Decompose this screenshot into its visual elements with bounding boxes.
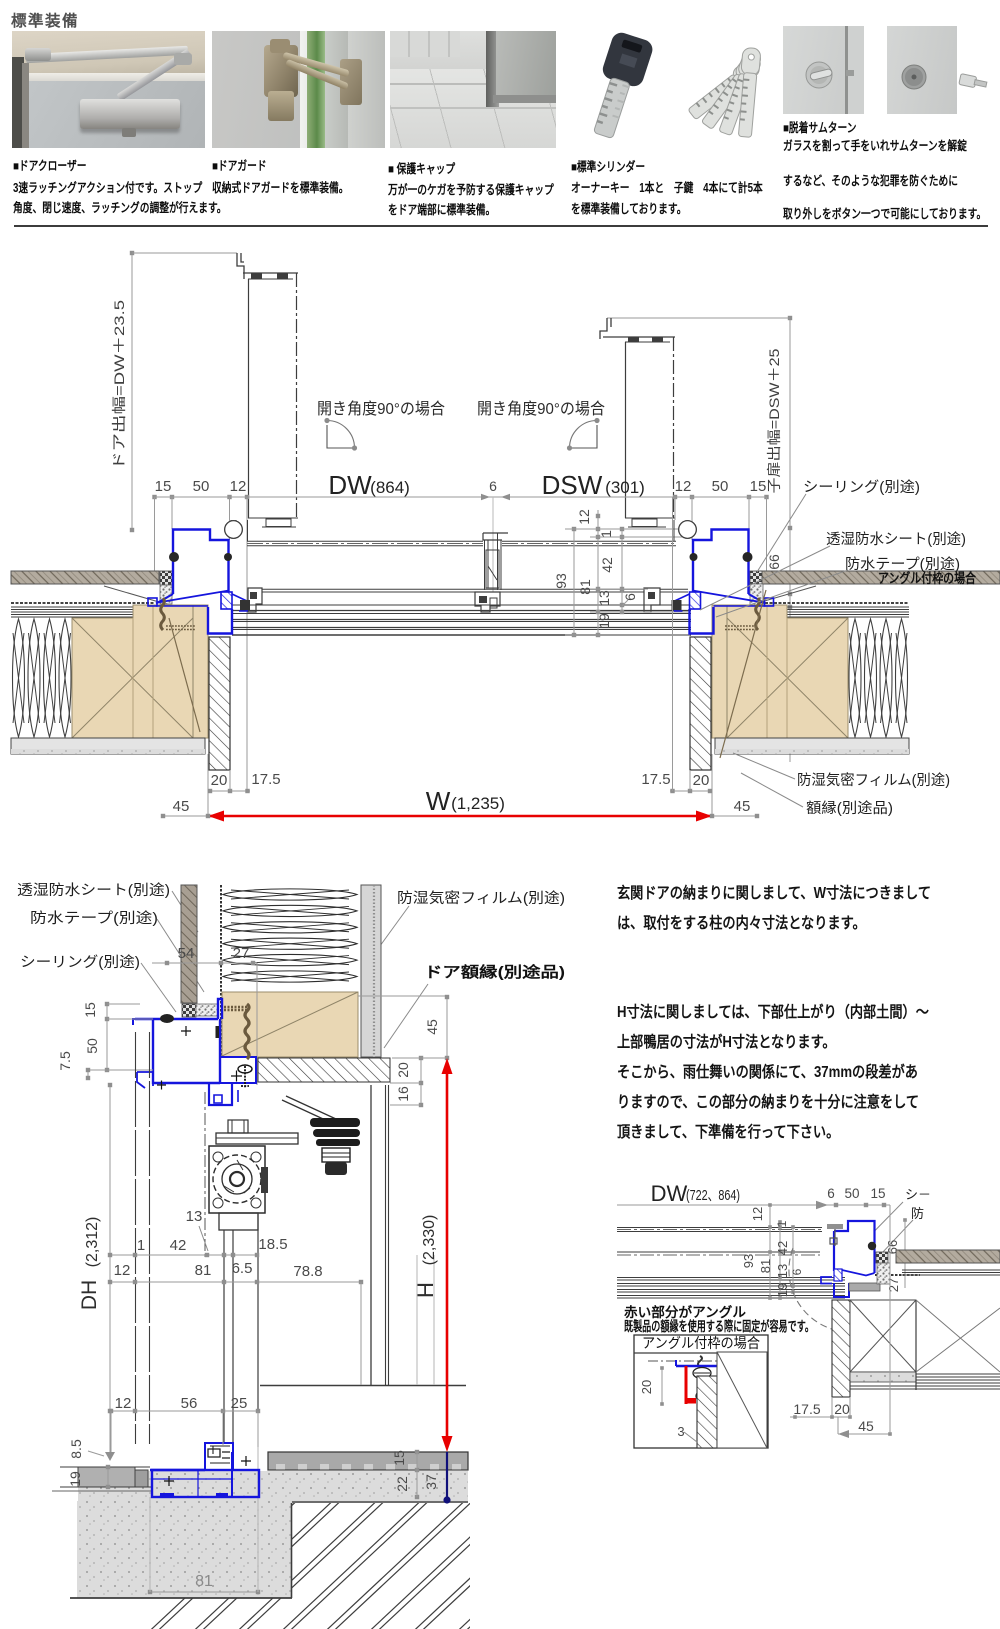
svg-text:45: 45 [173, 798, 190, 815]
svg-text:17.5: 17.5 [251, 771, 280, 788]
svg-text:シ－: シ－ [905, 1187, 931, 1202]
svg-text:15: 15 [750, 478, 767, 495]
svg-text:8.5: 8.5 [68, 1439, 84, 1459]
svg-text:12: 12 [114, 1262, 131, 1279]
svg-text:81: 81 [195, 1262, 212, 1279]
svg-text:6: 6 [827, 1186, 835, 1201]
svg-text:15: 15 [870, 1186, 885, 1201]
svg-text:6.5: 6.5 [232, 1260, 253, 1277]
svg-text:19: 19 [596, 613, 612, 629]
svg-text:50: 50 [712, 478, 729, 495]
svg-text:開き角度90°の場合: 開き角度90°の場合 [317, 400, 445, 418]
svg-text:13: 13 [186, 1208, 203, 1225]
svg-text:DW: DW [328, 470, 372, 500]
svg-text:54: 54 [178, 945, 195, 962]
svg-text:16: 16 [395, 1086, 411, 1102]
svg-text:透湿防水シート(別途): 透湿防水シート(別途) [17, 882, 170, 899]
svg-text:(722、864): (722、864) [686, 1187, 740, 1204]
svg-text:アングル付枠の場合: アングル付枠の場合 [642, 1335, 760, 1351]
svg-text:12: 12 [576, 509, 592, 525]
svg-text:20: 20 [834, 1401, 850, 1417]
svg-text:1: 1 [775, 1220, 789, 1227]
svg-text:赤い部分がアングル: 赤い部分がアングル [624, 1304, 746, 1320]
svg-text:93: 93 [741, 1254, 756, 1268]
svg-text:20: 20 [211, 772, 228, 789]
svg-text:7.5: 7.5 [57, 1051, 73, 1071]
svg-text:(301): (301) [605, 478, 645, 497]
svg-text:27: 27 [233, 945, 250, 962]
svg-text:13: 13 [775, 1264, 790, 1278]
svg-text:56: 56 [181, 1395, 198, 1412]
svg-text:6: 6 [622, 593, 638, 601]
svg-text:6: 6 [790, 1268, 804, 1275]
svg-text:ドア出幅=DW＋23.5: ドア出幅=DW＋23.5 [111, 300, 127, 470]
svg-text:シーリング(別途): シーリング(別途) [803, 479, 920, 496]
svg-text:66: 66 [766, 554, 782, 570]
svg-text:防湿気密フィルム(別途): 防湿気密フィルム(別途) [397, 890, 565, 907]
svg-text:(864): (864) [370, 478, 410, 497]
svg-text:42: 42 [599, 557, 615, 573]
svg-text:20: 20 [639, 1380, 654, 1394]
svg-text:22: 22 [394, 1476, 410, 1492]
svg-text:15: 15 [391, 1450, 407, 1466]
svg-text:81: 81 [577, 579, 593, 595]
svg-text:防: 防 [911, 1206, 924, 1221]
svg-text:額縁(別途品): 額縁(別途品) [806, 800, 893, 817]
svg-text:既製品の額縁を使用する際に固定が容易です。: 既製品の額縁を使用する際に固定が容易です。 [624, 1318, 814, 1334]
svg-text:20: 20 [395, 1062, 411, 1078]
svg-text:(2,312): (2,312) [84, 1217, 101, 1268]
svg-text:13: 13 [596, 590, 612, 606]
svg-text:93: 93 [553, 573, 569, 589]
svg-text:18.5: 18.5 [258, 1236, 287, 1253]
svg-text:12: 12 [750, 1207, 765, 1221]
svg-text:ドア額縁(別途品): ドア額縁(別途品) [424, 963, 565, 981]
svg-text:19: 19 [67, 1471, 83, 1487]
svg-text:50: 50 [844, 1186, 859, 1201]
svg-text:DH: DH [78, 1280, 101, 1310]
svg-text:78.8: 78.8 [293, 1263, 322, 1280]
svg-text:20: 20 [693, 772, 710, 789]
svg-text:37: 37 [423, 1474, 439, 1490]
svg-text:開き角度90°の場合: 開き角度90°の場合 [477, 400, 605, 418]
svg-text:81: 81 [758, 1259, 773, 1273]
svg-text:12: 12 [115, 1395, 132, 1412]
svg-text:H: H [413, 1282, 438, 1298]
svg-text:19: 19 [775, 1283, 790, 1297]
svg-text:12: 12 [230, 478, 247, 495]
svg-text:子扉出幅=DSW＋25: 子扉出幅=DSW＋25 [766, 348, 782, 493]
svg-text:17.5: 17.5 [641, 771, 670, 788]
svg-text:81: 81 [195, 1573, 213, 1590]
svg-text:42: 42 [170, 1237, 187, 1254]
svg-text:防水テープ(別途): 防水テープ(別途) [30, 910, 158, 927]
svg-text:25: 25 [231, 1395, 248, 1412]
svg-text:防湿気密フィルム(別途): 防湿気密フィルム(別途) [797, 772, 950, 789]
svg-text:17.5: 17.5 [793, 1401, 820, 1417]
svg-text:45: 45 [858, 1418, 874, 1434]
svg-text:45: 45 [734, 798, 751, 815]
svg-text:45: 45 [424, 1019, 440, 1035]
svg-text:50: 50 [84, 1038, 100, 1054]
svg-text:透湿防水シート(別途): 透湿防水シート(別途) [826, 531, 966, 548]
svg-text:DW: DW [651, 1181, 688, 1206]
svg-text:W: W [426, 786, 451, 816]
svg-text:1: 1 [137, 1237, 145, 1254]
svg-text:50: 50 [193, 478, 210, 495]
svg-text:12: 12 [675, 478, 692, 495]
svg-text:(2,330): (2,330) [421, 1215, 438, 1266]
svg-text:3: 3 [677, 1424, 684, 1439]
svg-text:DSW: DSW [542, 470, 603, 500]
svg-text:15: 15 [82, 1002, 98, 1018]
svg-text:(1,235): (1,235) [451, 794, 505, 813]
svg-text:シーリング(別途): シーリング(別途) [20, 954, 140, 971]
svg-text:15: 15 [155, 478, 172, 495]
svg-text:防水テープ(別途): 防水テープ(別途) [845, 556, 960, 573]
svg-text:42: 42 [775, 1241, 790, 1255]
svg-text:6: 6 [489, 478, 497, 494]
